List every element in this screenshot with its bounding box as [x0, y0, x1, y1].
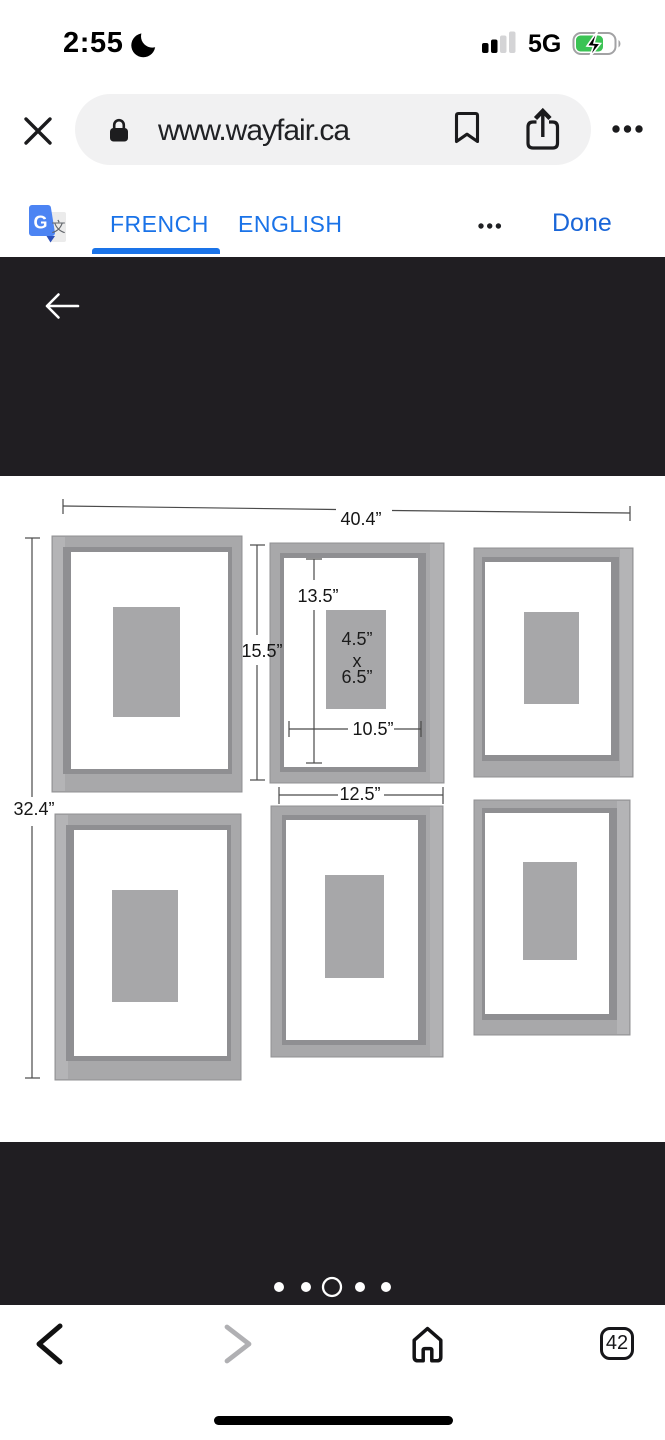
svg-text:文: 文: [52, 219, 66, 235]
svg-text:G: G: [33, 213, 47, 233]
